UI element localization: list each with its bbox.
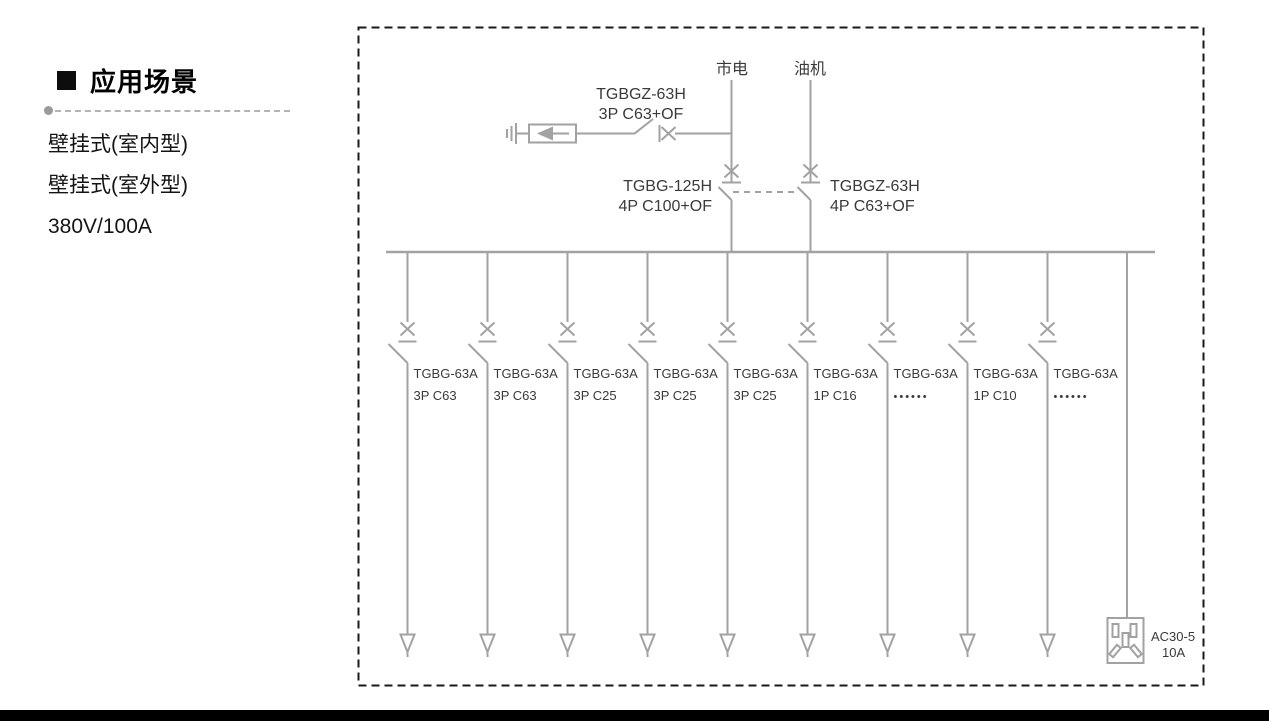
transfer-right-spec: 4P C63+OF xyxy=(830,198,915,215)
diagram-border xyxy=(359,28,1204,686)
load-arrow-icon xyxy=(721,635,735,653)
feeder-breaker-icon xyxy=(389,252,417,657)
feeder-branch: TGBG-63A•••••• xyxy=(869,252,959,657)
branch-model: TGBG-63A xyxy=(654,366,719,381)
branch-spec: 3P C63 xyxy=(494,388,537,403)
branch-spec: 3P C25 xyxy=(574,388,617,403)
feeder-branch: TGBG-63A•••••• xyxy=(1029,252,1119,657)
feeder-breaker-icon xyxy=(629,252,657,657)
branch-model: TGBG-63A xyxy=(894,366,959,381)
branch-spec: •••••• xyxy=(894,391,929,403)
branch-model: TGBG-63A xyxy=(734,366,799,381)
feeder-breaker-icon xyxy=(949,252,977,657)
load-arrow-icon xyxy=(481,635,495,653)
feeder-breaker-icon xyxy=(549,252,577,657)
transfer-left-model: TGBG-125H xyxy=(623,178,712,195)
feeder-breaker-icon xyxy=(469,252,497,657)
single-line-diagram: 市电 油机 TGBGZ-63H 3P C63+OF TGBG-125H 4P C… xyxy=(0,0,1269,721)
feeder-branch: TGBG-63A1P C16 xyxy=(789,252,879,657)
branch-spec: 1P C16 xyxy=(814,388,857,403)
branch-spec: 1P C10 xyxy=(974,388,1017,403)
branch-spec: 3P C63 xyxy=(414,388,457,403)
spd-breaker-spec: 3P C63+OF xyxy=(599,106,684,123)
branch-model: TGBG-63A xyxy=(1054,366,1119,381)
spd-arrow-icon xyxy=(537,127,553,141)
branch-group: TGBG-63A3P C63TGBG-63A3P C63TGBG-63A3P C… xyxy=(389,252,1119,657)
branch-model: TGBG-63A xyxy=(494,366,559,381)
feeder-breaker-icon xyxy=(869,252,897,657)
feeder-branch: TGBG-63A3P C25 xyxy=(629,252,719,657)
load-arrow-icon xyxy=(561,635,575,653)
mains-line xyxy=(719,80,742,252)
transfer-right-model: TGBGZ-63H xyxy=(830,178,920,195)
feeder-breaker-icon xyxy=(1029,252,1057,657)
ground-icon xyxy=(507,123,529,144)
load-arrow-icon xyxy=(801,635,815,653)
feeder-breaker-icon xyxy=(709,252,737,657)
branch-spec: •••••• xyxy=(1054,391,1089,403)
branch-model: TGBG-63A xyxy=(814,366,879,381)
branch-model: TGBG-63A xyxy=(974,366,1039,381)
branch-model: TGBG-63A xyxy=(414,366,479,381)
generator-line xyxy=(798,80,821,252)
socket-icon xyxy=(1108,618,1144,663)
mains-label: 市电 xyxy=(716,60,748,78)
spd-breaker-model: TGBGZ-63H xyxy=(596,86,686,103)
socket-model: AC30-5 xyxy=(1151,629,1195,644)
load-arrow-icon xyxy=(961,635,975,653)
feeder-branch: TGBG-63A1P C10 xyxy=(949,252,1039,657)
branch-spec: 3P C25 xyxy=(734,388,777,403)
generator-label: 油机 xyxy=(794,60,826,78)
branch-model: TGBG-63A xyxy=(574,366,639,381)
load-arrow-icon xyxy=(641,635,655,653)
feeder-breaker-icon xyxy=(789,252,817,657)
socket-rating: 10A xyxy=(1162,645,1185,660)
feeder-branch: TGBG-63A3P C25 xyxy=(709,252,799,657)
branch-spec: 3P C25 xyxy=(654,388,697,403)
load-arrow-icon xyxy=(1041,635,1055,653)
feeder-branch: TGBG-63A3P C63 xyxy=(389,252,479,657)
load-arrow-icon xyxy=(401,635,415,653)
bottom-bar xyxy=(0,710,1269,721)
transfer-left-spec: 4P C100+OF xyxy=(618,198,712,215)
load-arrow-icon xyxy=(881,635,895,653)
feeder-branch: TGBG-63A3P C63 xyxy=(469,252,559,657)
feeder-branch: TGBG-63A3P C25 xyxy=(549,252,639,657)
